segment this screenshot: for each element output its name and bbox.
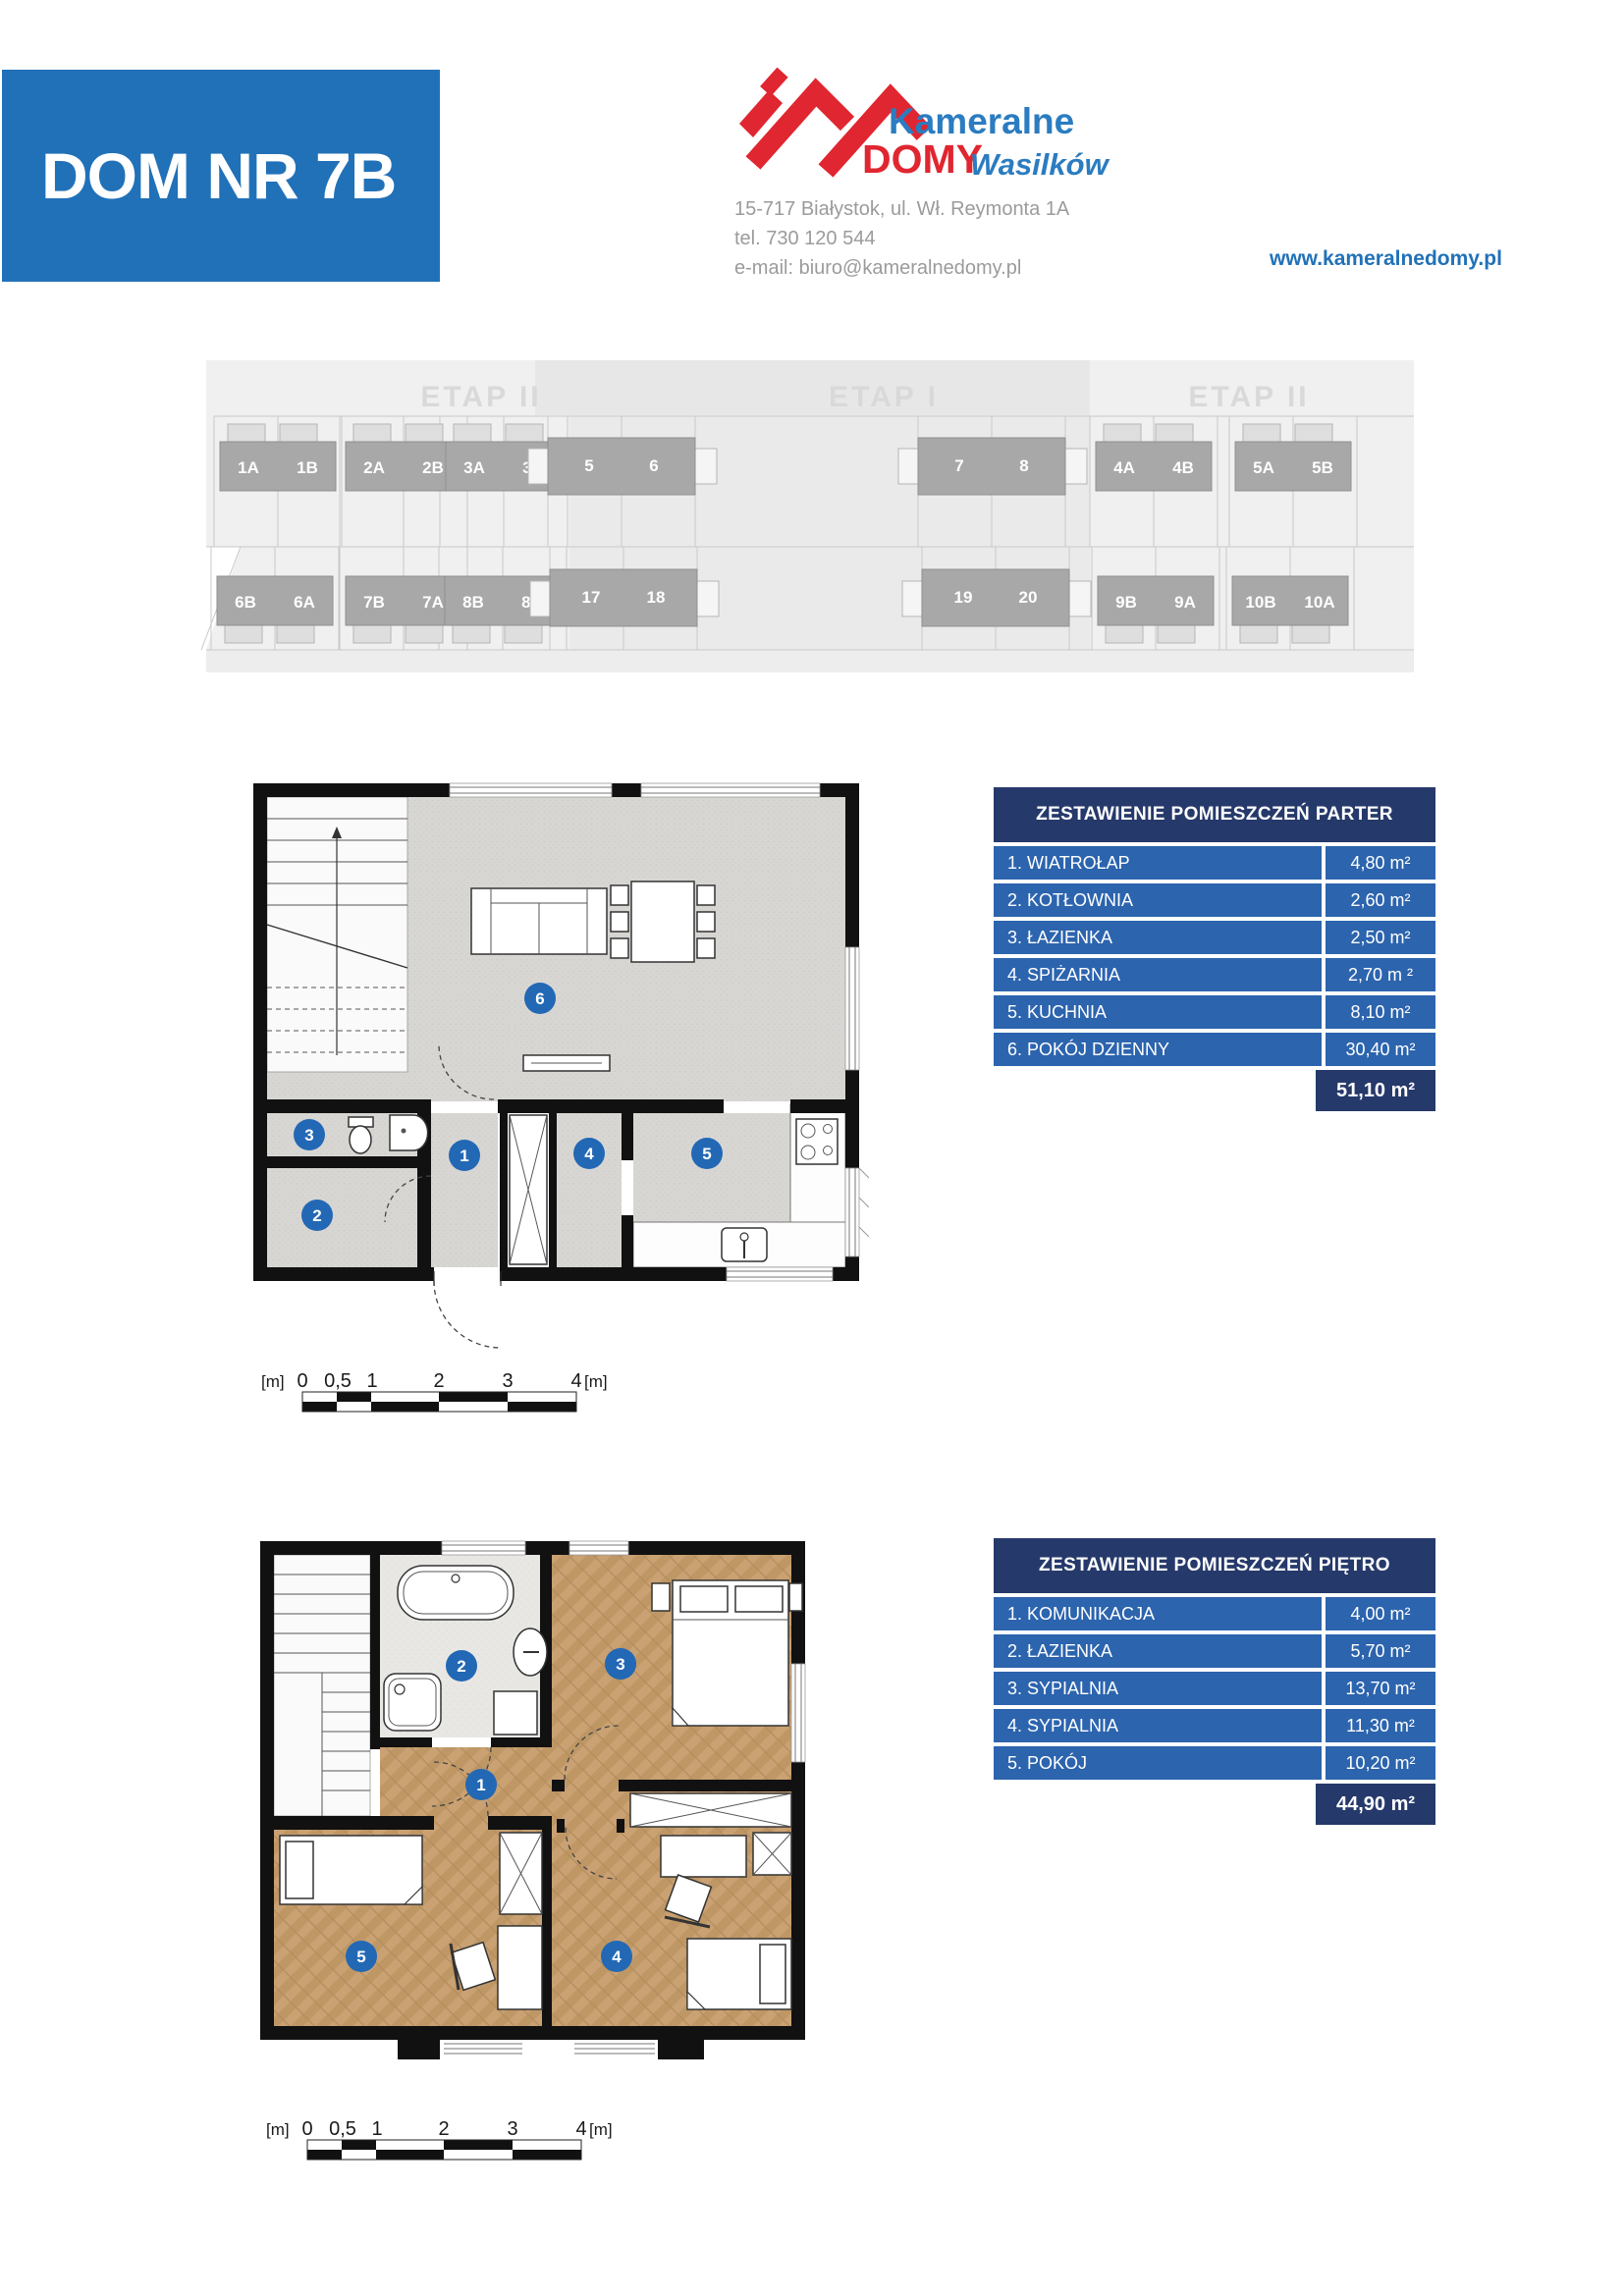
svg-text:6: 6	[649, 456, 658, 475]
scale-bar-pietro: [m] 0 0,5 1 2 3 4 [m]	[263, 2120, 617, 2169]
house-pair-7-8: 7 8	[898, 438, 1087, 495]
svg-text:4: 4	[584, 1145, 594, 1163]
svg-text:2A: 2A	[363, 458, 385, 477]
svg-text:9B: 9B	[1115, 593, 1137, 612]
pietro-staircase	[274, 1555, 370, 1816]
table-row: 2. ŁAZIENKA5,70 m²	[994, 1634, 1435, 1668]
svg-text:18: 18	[647, 588, 666, 607]
svg-text:3: 3	[616, 1655, 624, 1674]
house-pair-17-18: 17 18	[530, 569, 719, 626]
svg-text:10A: 10A	[1304, 593, 1334, 612]
house-pair-19-20: 19 20	[902, 569, 1091, 626]
kitchen-stove	[796, 1119, 838, 1164]
contact-email[interactable]: e-mail: biuro@kameralnedomy.pl	[734, 253, 1069, 283]
kitchen-sink	[722, 1228, 767, 1261]
room4-bed	[687, 1939, 791, 2009]
svg-text:5: 5	[584, 456, 593, 475]
svg-text:2: 2	[433, 1372, 444, 1392]
svg-text:5A: 5A	[1253, 458, 1274, 477]
room-marker-3: 3	[605, 1648, 636, 1680]
bathroom-sink	[390, 1115, 428, 1150]
parter-staircase	[267, 797, 407, 1072]
svg-text:4A: 4A	[1113, 458, 1135, 477]
room-marker-3: 3	[294, 1119, 325, 1150]
contact-phone: tel. 730 120 544	[734, 224, 1069, 253]
table-row: 2. KOTŁOWNIA2,60 m²	[994, 883, 1435, 917]
double-bed	[652, 1580, 802, 1726]
svg-text:4B: 4B	[1172, 458, 1194, 477]
svg-text:7A: 7A	[422, 593, 444, 612]
scale-bar-segments	[302, 1392, 576, 1412]
table-row: 4. SPIŻARNIA2,70 m ²	[994, 958, 1435, 991]
bathtub	[398, 1566, 514, 1620]
bath-cabinet	[494, 1691, 537, 1735]
room-marker-1: 1	[465, 1769, 497, 1800]
logo-word-wasilkow: Wasilków	[970, 147, 1110, 182]
svg-text:1: 1	[460, 1147, 468, 1165]
svg-text:5: 5	[356, 1948, 365, 1966]
svg-text:0: 0	[301, 2120, 312, 2140]
svg-text:5: 5	[702, 1145, 711, 1163]
room-marker-1: 1	[449, 1140, 480, 1171]
svg-text:17: 17	[582, 588, 601, 607]
svg-text:3: 3	[304, 1126, 313, 1145]
dining-table	[611, 881, 715, 962]
table-row: 5. KUCHNIA8,10 m²	[994, 995, 1435, 1029]
room5-wardrobe	[500, 1833, 542, 1914]
table-row: 1. WIATROŁAP4,80 m²	[994, 846, 1435, 880]
house-title-banner: DOM NR 7B	[2, 70, 440, 282]
svg-text:[m]: [m]	[261, 1372, 285, 1391]
page-title: DOM NR 7B	[2, 70, 440, 282]
scale-bar-parter: [m] 0 0,5 1 2 3 4 [m]	[258, 1372, 612, 1421]
upstairs-sink	[514, 1629, 547, 1676]
svg-text:2: 2	[312, 1206, 321, 1225]
house-pair-5-6: 5 6	[528, 438, 717, 495]
svg-text:6B: 6B	[235, 593, 256, 612]
total-area-pietro: 44,90 m²	[1316, 1784, 1435, 1825]
logo-word-kameralne: Kameralne	[889, 101, 1074, 141]
room-marker-2: 2	[446, 1650, 477, 1682]
svg-text:1B: 1B	[297, 458, 318, 477]
stage-label-etap1: ETAP I	[829, 381, 939, 413]
svg-text:1: 1	[476, 1776, 485, 1794]
table-pietro: ZESTAWIENIE POMIESZCZEŃ PIĘTRO 1. KOMUNI…	[994, 1538, 1435, 1825]
svg-text:4: 4	[575, 2120, 586, 2140]
toilet	[349, 1117, 373, 1153]
svg-text:3: 3	[507, 2120, 517, 2140]
svg-text:20: 20	[1019, 588, 1038, 607]
total-area-parter: 51,10 m²	[1316, 1070, 1435, 1111]
website-link[interactable]: www.kameralnedomy.pl	[1270, 247, 1502, 271]
logo-word-domy: DOMY	[862, 136, 983, 182]
table-row: 1. KOMUNIKACJA4,00 m²	[994, 1597, 1435, 1630]
contact-block: 15-717 Białystok, ul. Wł. Reymonta 1A te…	[734, 194, 1069, 283]
table-row: 3. SYPIALNIA13,70 m²	[994, 1672, 1435, 1705]
svg-text:6A: 6A	[294, 593, 315, 612]
svg-text:0,5: 0,5	[329, 2120, 356, 2140]
contact-address: 15-717 Białystok, ul. Wł. Reymonta 1A	[734, 194, 1069, 224]
svg-text:2B: 2B	[422, 458, 444, 477]
svg-text:1A: 1A	[238, 458, 259, 477]
table-parter: ZESTAWIENIE POMIESZCZEŃ PARTER 1. WIATRO…	[994, 787, 1435, 1111]
table-row: 5. POKÓJ10,20 m²	[994, 1746, 1435, 1780]
stage-label-etap2-right: ETAP II	[1188, 381, 1309, 413]
svg-text:[m]: [m]	[584, 1372, 608, 1391]
floor-plan-pietro: 1 2 3 4 5	[241, 1526, 820, 2076]
scale-bar-segments	[307, 2140, 581, 2160]
estate-site-plan: ETAP II ETAP I ETAP II	[147, 355, 1424, 694]
room-marker-5: 5	[346, 1941, 377, 1972]
svg-text:8: 8	[1019, 456, 1028, 475]
room-marker-2: 2	[301, 1200, 333, 1231]
bedroom3-wardrobe	[630, 1793, 791, 1827]
brochure-page: DOM NR 7B Kameralne DOMY Wasilków 15-717…	[0, 0, 1624, 2296]
room-marker-4: 4	[573, 1138, 605, 1169]
room-marker-6: 6	[524, 983, 556, 1014]
svg-text:3A: 3A	[463, 458, 485, 477]
svg-text:2: 2	[457, 1657, 465, 1676]
table-parter-title: ZESTAWIENIE POMIESZCZEŃ PARTER	[994, 787, 1435, 842]
table-pietro-total-row: 44,90 m²	[994, 1784, 1435, 1825]
room-marker-5: 5	[691, 1138, 723, 1169]
floor-plan-parter: 1 2 3 4 5 6	[172, 775, 869, 1350]
svg-text:[m]: [m]	[266, 2120, 290, 2139]
table-pietro-title: ZESTAWIENIE POMIESZCZEŃ PIĘTRO	[994, 1538, 1435, 1593]
table-parter-total-row: 51,10 m²	[994, 1070, 1435, 1111]
hall-wardrobe	[510, 1115, 547, 1264]
svg-text:7B: 7B	[363, 593, 385, 612]
shower	[384, 1674, 441, 1731]
svg-text:5B: 5B	[1312, 458, 1333, 477]
tv-console	[523, 1055, 610, 1071]
room5-bed	[280, 1836, 422, 1904]
svg-text:9A: 9A	[1174, 593, 1196, 612]
svg-text:0,5: 0,5	[324, 1372, 352, 1392]
svg-text:6: 6	[535, 989, 544, 1008]
svg-text:4: 4	[612, 1948, 622, 1966]
sofa	[471, 888, 607, 954]
table-row: 3. ŁAZIENKA2,50 m²	[994, 921, 1435, 954]
svg-text:1: 1	[366, 1372, 377, 1392]
svg-text:8B: 8B	[462, 593, 484, 612]
svg-text:3: 3	[502, 1372, 513, 1392]
table-row: 4. SYPIALNIA11,30 m²	[994, 1709, 1435, 1742]
svg-text:0: 0	[297, 1372, 307, 1392]
svg-text:1: 1	[371, 2120, 382, 2140]
svg-text:4: 4	[570, 1372, 581, 1392]
svg-text:19: 19	[954, 588, 973, 607]
svg-text:7: 7	[954, 456, 963, 475]
table-row: 6. POKÓJ DZIENNY30,40 m²	[994, 1033, 1435, 1066]
svg-text:10B: 10B	[1245, 593, 1275, 612]
stage-label-etap2-left: ETAP II	[420, 381, 541, 413]
company-logo: Kameralne DOMY Wasilków	[731, 47, 1154, 194]
room4-wardrobe	[753, 1833, 791, 1875]
svg-text:[m]: [m]	[589, 2120, 613, 2139]
svg-text:2: 2	[438, 2120, 449, 2140]
room-marker-4: 4	[601, 1941, 632, 1972]
